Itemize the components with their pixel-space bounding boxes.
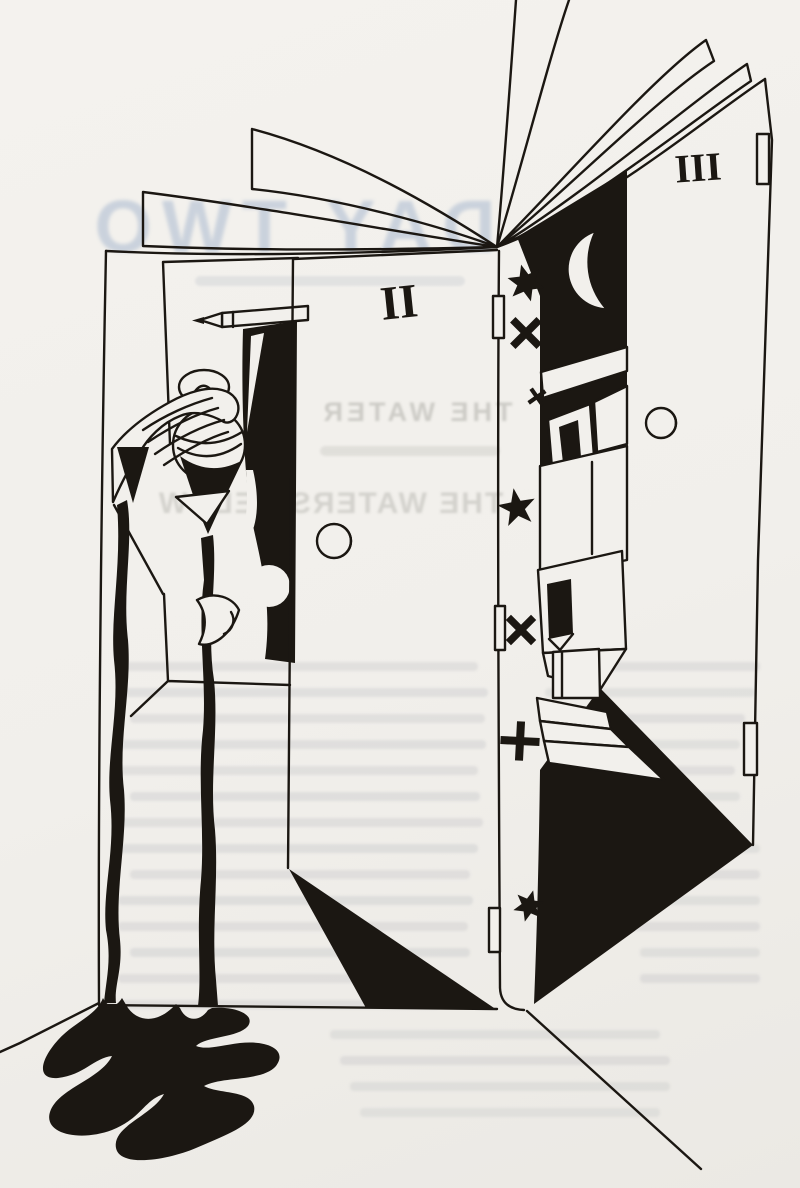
plus-cross-star-icon [499,720,540,761]
curtain-circle-cutout [248,565,290,607]
hinge-icon [744,723,757,775]
ink-puddle [43,998,280,1160]
book-page-scan: DAY TWO THE WATER THE WATERS BELOW [0,0,800,1188]
hinge-icon [493,296,504,338]
left-cover-outer-edge [99,251,106,1003]
dark-window [547,579,573,639]
showthrough-text-line [320,446,500,456]
showthrough-text-line [195,276,465,286]
middle-door-edges [288,250,497,868]
showthrough-heading-1: THE WATER [320,397,513,427]
roman-numeral-iii: III [673,143,723,191]
hinge-icon [495,606,505,650]
ink-flow [43,500,280,1160]
ink-layer: II [0,0,772,1169]
door-knob [317,524,351,558]
illustration-canvas: DAY TWO THE WATER THE WATERS BELOW [0,0,800,1188]
door-shadow-wedge [289,869,497,1010]
roman-numeral-ii: II [378,274,421,331]
page-edge [497,0,516,247]
door-knob [646,408,676,438]
hinge-icon [489,908,500,952]
hinge-icon [757,134,769,184]
